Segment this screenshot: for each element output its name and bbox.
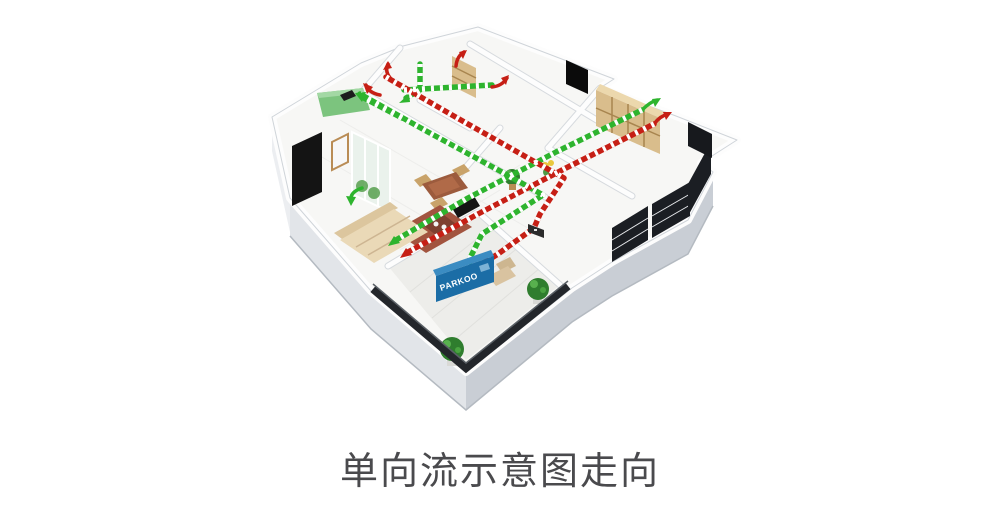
table-dish [434,222,439,227]
floorplan-3d-diagram: PARKOO [0,0,1000,430]
flower-bloom [548,160,554,166]
plant-highlight [530,280,538,288]
plant-behind-glass [368,187,380,199]
diagram-caption: 单向流示意图走向 [0,440,1000,495]
plant-highlight [540,287,546,293]
control-box-light [534,229,537,231]
page: PARKOO 单向流示意图走向 [0,0,1000,510]
plant-pot [509,184,516,190]
plant-highlight [455,347,461,353]
